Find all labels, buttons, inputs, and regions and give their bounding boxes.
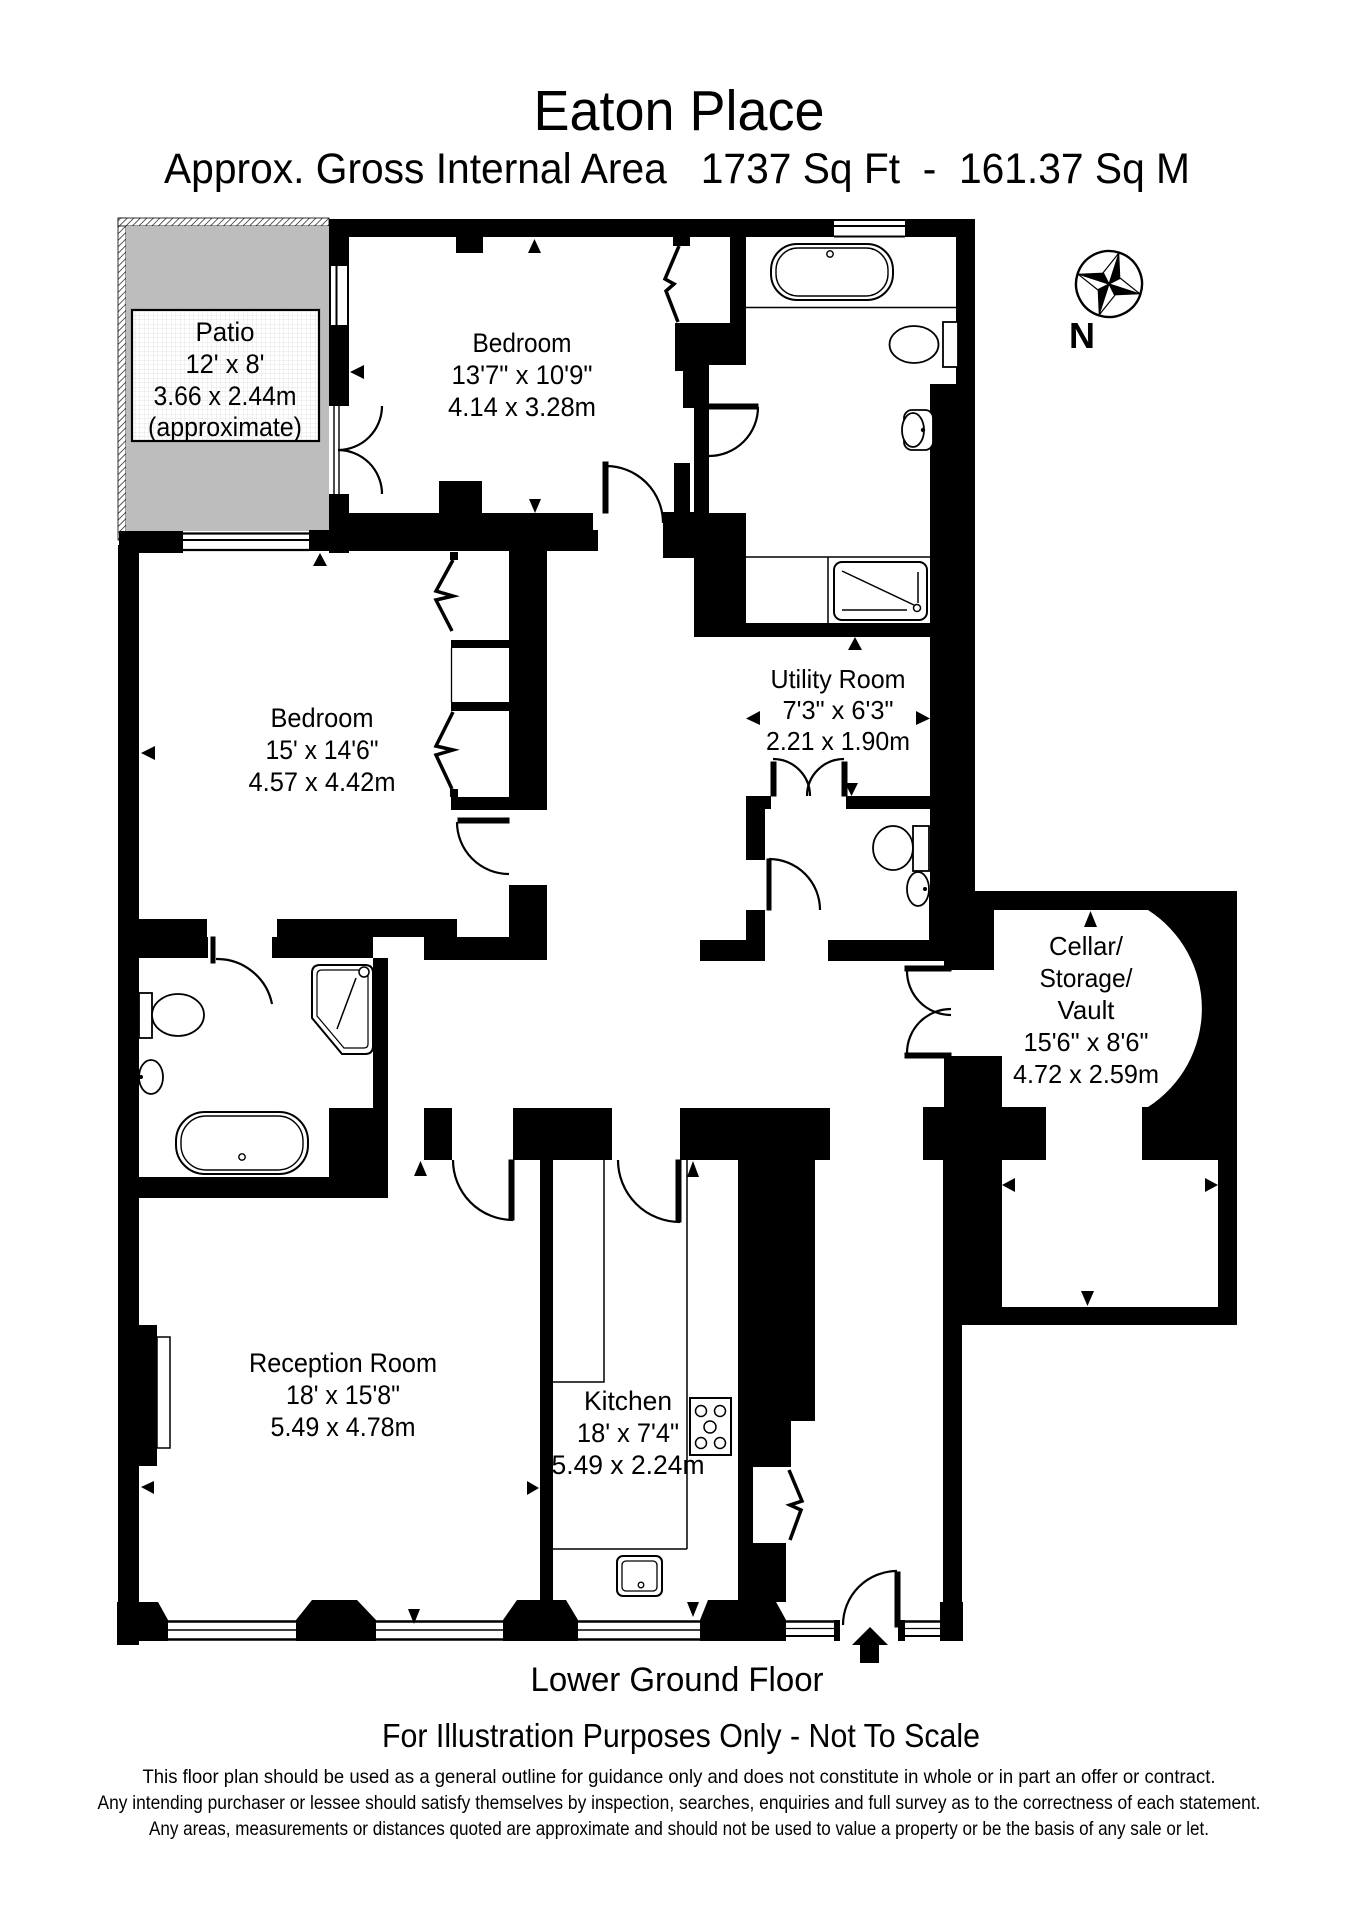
svg-text:Bedroom: Bedroom <box>473 328 572 358</box>
svg-text:18' x 7'4": 18' x 7'4" <box>577 1418 679 1448</box>
svg-text:2.21 x 1.90m: 2.21 x 1.90m <box>766 726 910 756</box>
svg-text:For Illustration Purposes Only: For Illustration Purposes Only - Not To … <box>382 1717 980 1754</box>
svg-text:Any intending purchaser or les: Any intending purchaser or lessee should… <box>98 1792 1261 1814</box>
svg-text:3.66 x 2.44m: 3.66 x 2.44m <box>154 381 297 411</box>
svg-text:5.49 x 4.78m: 5.49 x 4.78m <box>271 1412 416 1442</box>
svg-text:Utility Room: Utility Room <box>771 664 906 694</box>
svg-text:N: N <box>1069 315 1095 356</box>
svg-text:Bedroom: Bedroom <box>271 703 374 733</box>
svg-text:This floor plan should be used: This floor plan should be used as a gene… <box>143 1766 1216 1788</box>
svg-text:Reception Room: Reception Room <box>249 1348 437 1378</box>
svg-text:Vault: Vault <box>1058 995 1116 1025</box>
svg-text:Patio: Patio <box>196 317 255 347</box>
svg-text:13'7" x 10'9": 13'7" x 10'9" <box>452 360 593 390</box>
svg-text:18' x 15'8": 18' x 15'8" <box>286 1380 400 1410</box>
svg-text:4.14 x 3.28m: 4.14 x 3.28m <box>448 392 596 422</box>
svg-text:Cellar/: Cellar/ <box>1049 931 1124 961</box>
svg-text:4.57 x 4.42m: 4.57 x 4.42m <box>249 767 396 797</box>
svg-text:15' x 14'6": 15' x 14'6" <box>266 735 379 765</box>
svg-text:Storage/: Storage/ <box>1040 963 1134 993</box>
svg-text:(approximate): (approximate) <box>148 412 302 442</box>
svg-text:Approx. Gross Internal Area: Approx. Gross Internal Area 1737 Sq Ft -… <box>164 145 1190 193</box>
svg-text:Kitchen: Kitchen <box>584 1386 672 1416</box>
svg-text:Eaton Place: Eaton Place <box>534 79 825 143</box>
svg-text:7'3" x 6'3": 7'3" x 6'3" <box>783 695 894 725</box>
svg-text:Lower Ground Floor: Lower Ground Floor <box>531 1661 824 1699</box>
svg-text:5.49 x 2.24m: 5.49 x 2.24m <box>552 1450 705 1480</box>
svg-text:12' x 8': 12' x 8' <box>186 349 265 379</box>
svg-text:Any areas, measurements or dis: Any areas, measurements or distances quo… <box>149 1818 1209 1840</box>
svg-text:4.72 x 2.59m: 4.72 x 2.59m <box>1013 1059 1159 1089</box>
svg-text:15'6" x 8'6": 15'6" x 8'6" <box>1024 1027 1149 1057</box>
